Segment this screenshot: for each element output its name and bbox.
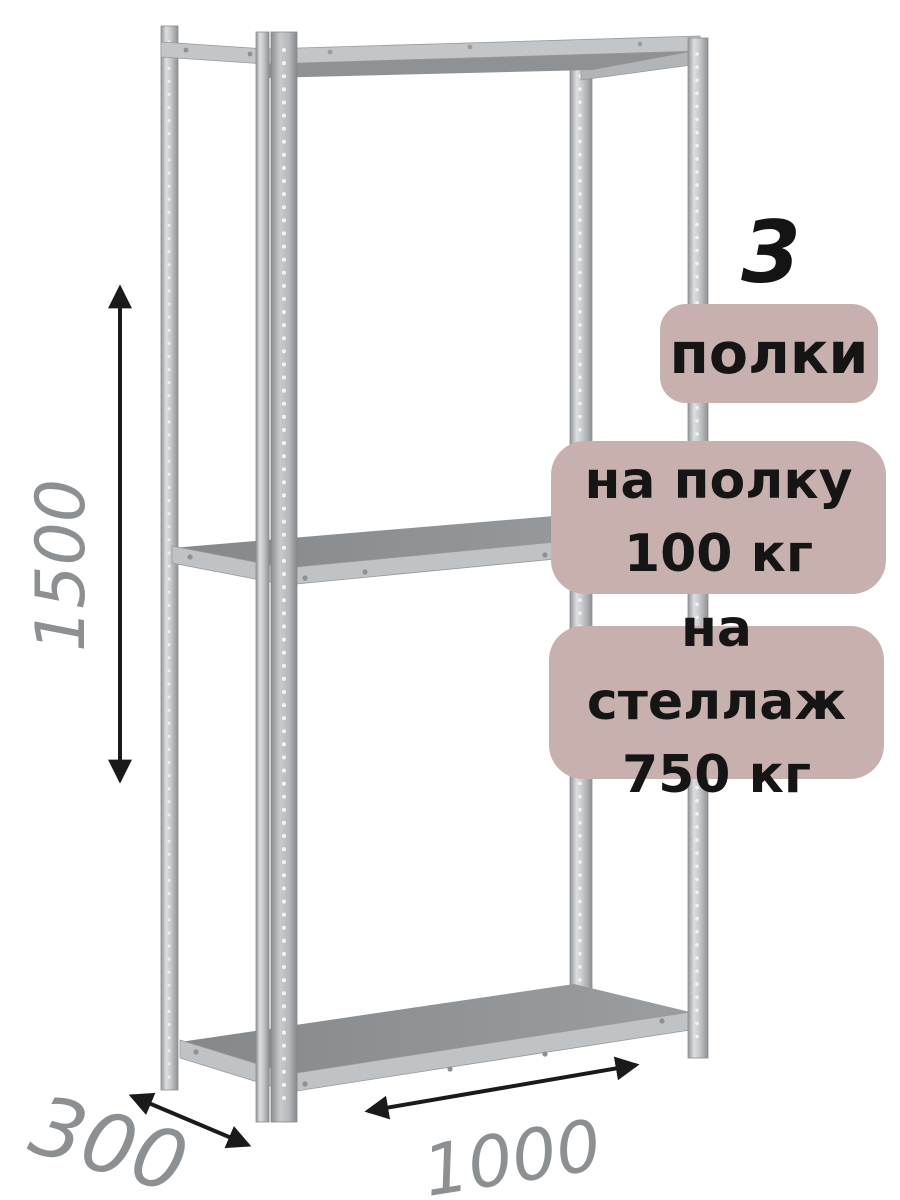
product-image: 1500 300 1000 3 полки на полку 100 кг на… <box>0 0 900 1200</box>
depth-dimension-label: 300 <box>20 1078 197 1200</box>
rack-load-badge: на стеллаж 750 кг <box>549 626 884 779</box>
shelf-load-badge: на полку 100 кг <box>551 441 886 594</box>
rack-load-text-line2: 750 кг <box>622 739 811 812</box>
shelf-count-label: полки <box>670 321 869 387</box>
shelf-load-text-line2: 100 кг <box>624 518 813 591</box>
rack-load-text-line1: на стеллаж <box>549 593 884 739</box>
height-dimension-label: 1500 <box>22 479 101 652</box>
rack-shelf-top <box>161 36 700 80</box>
rack-post-front-left <box>256 32 297 1122</box>
shelf-count-badge: полки <box>660 304 878 403</box>
shelf-count-number: 3 <box>706 210 836 296</box>
width-dimension-label: 1000 <box>418 1104 607 1200</box>
shelf-load-text-line1: на полку <box>584 445 852 518</box>
